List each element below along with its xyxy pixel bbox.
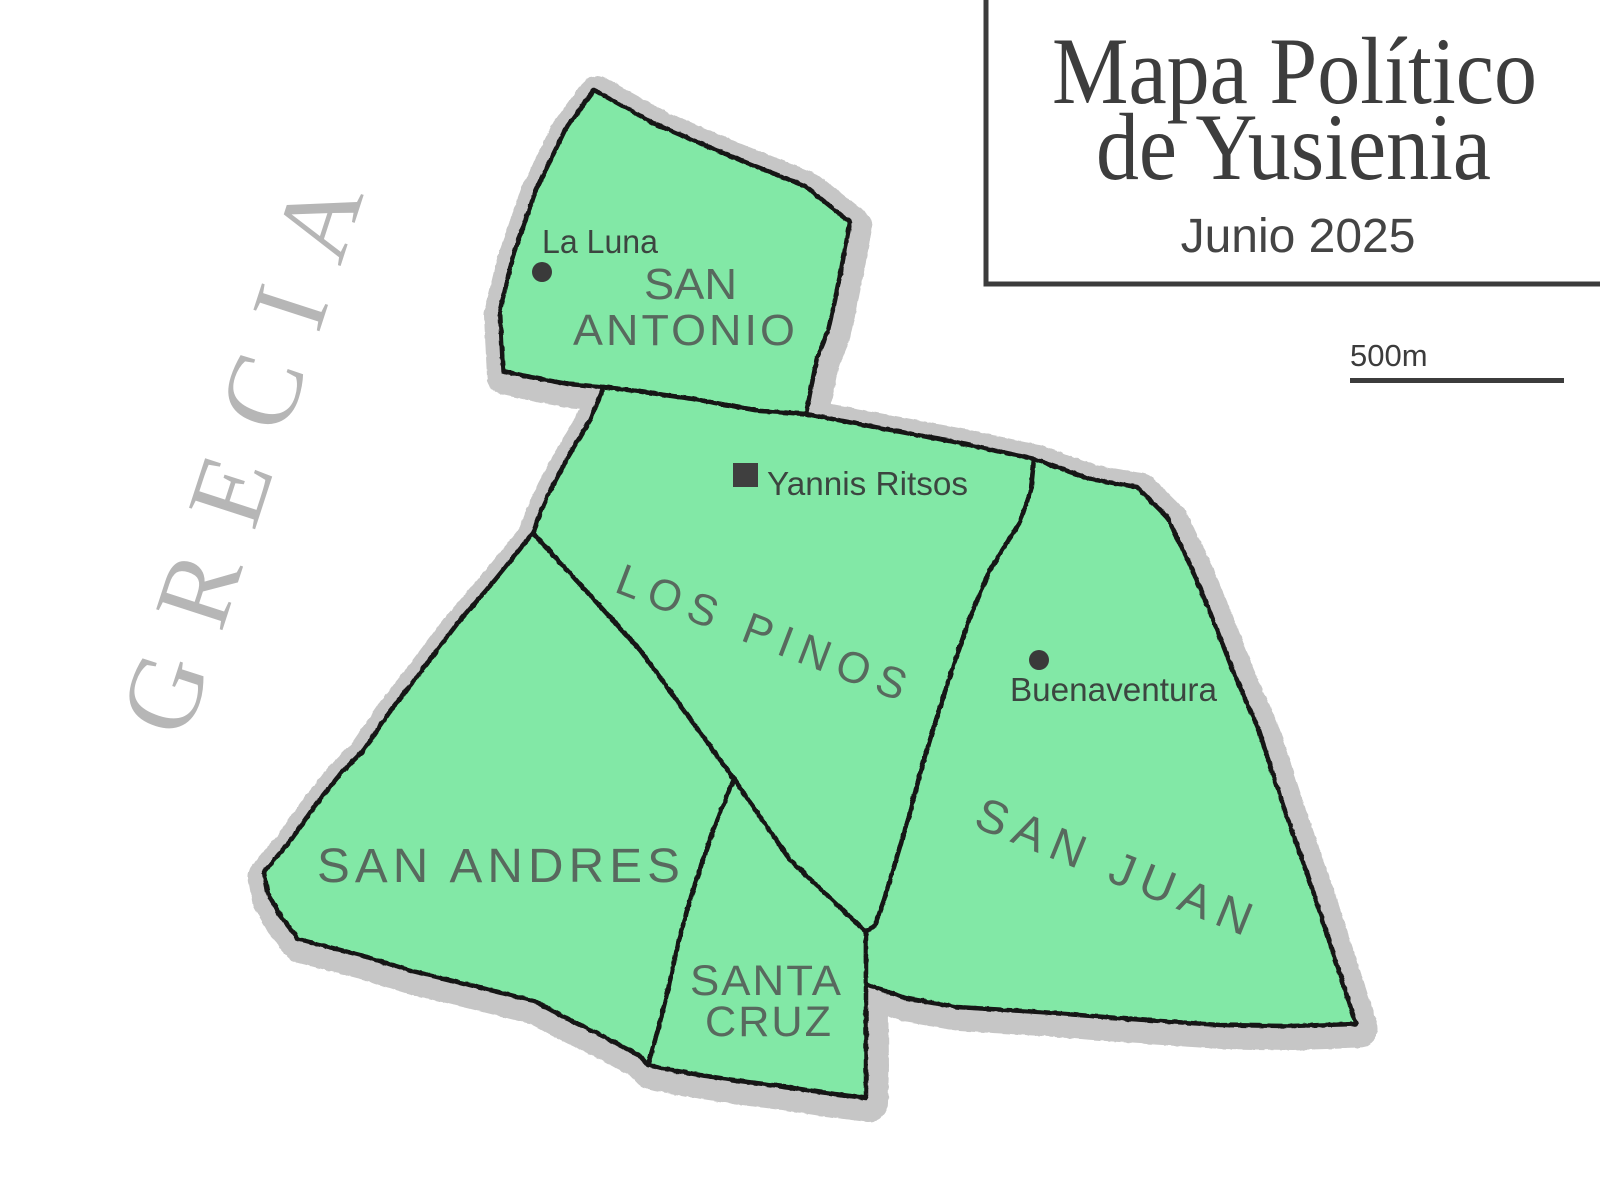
svg-text:Buenaventura: Buenaventura	[1010, 671, 1218, 708]
svg-text:CRUZ: CRUZ	[705, 998, 833, 1046]
svg-text:Yannis Ritsos: Yannis Ritsos	[767, 465, 968, 502]
svg-text:ANTONIO: ANTONIO	[573, 306, 798, 355]
svg-text:500m: 500m	[1350, 338, 1428, 373]
svg-text:La Luna: La Luna	[542, 223, 659, 260]
svg-text:SAN: SAN	[644, 260, 737, 309]
svg-text:SAN ANDRES: SAN ANDRES	[317, 840, 685, 893]
svg-text:de Yusienia: de Yusienia	[1096, 94, 1491, 200]
svg-text:Junio 2025: Junio 2025	[1181, 210, 1416, 263]
svg-text:GRECIA: GRECIA	[97, 131, 397, 748]
